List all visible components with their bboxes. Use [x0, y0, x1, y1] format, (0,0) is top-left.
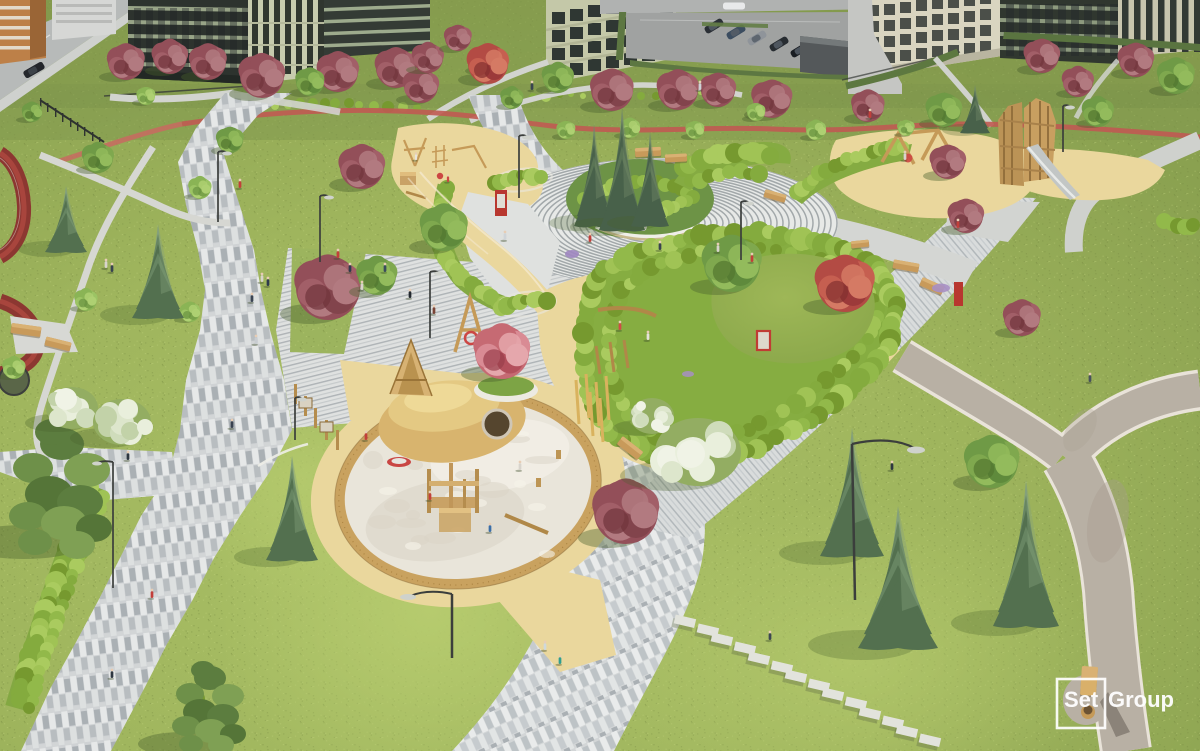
svg-text:Set: Set: [1064, 687, 1099, 712]
svg-text:Group: Group: [1108, 687, 1174, 712]
